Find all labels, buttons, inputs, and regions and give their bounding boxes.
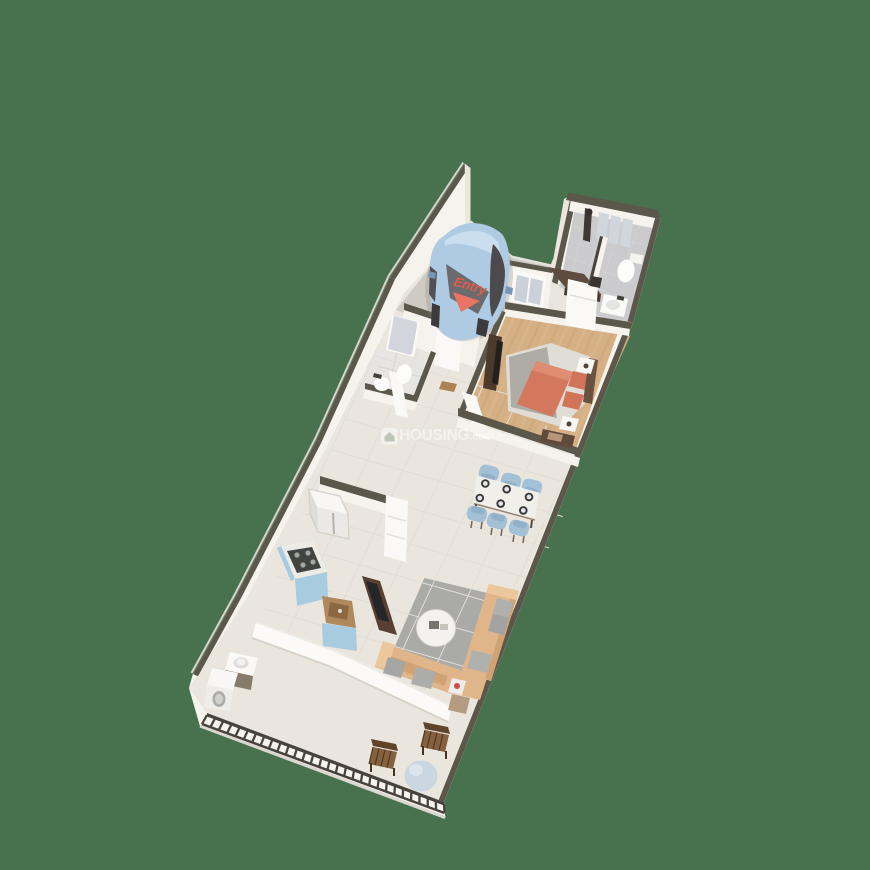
- svg-text:HOUSING.com: HOUSING.com: [399, 427, 495, 444]
